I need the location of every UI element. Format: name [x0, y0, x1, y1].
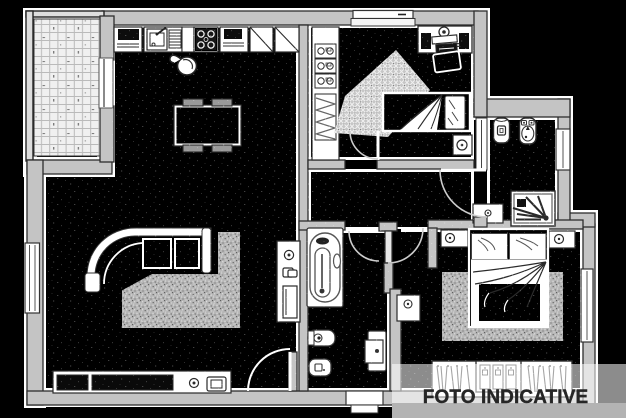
svg-text:FOTO INDICATIVE: FOTO INDICATIVE [423, 387, 588, 408]
